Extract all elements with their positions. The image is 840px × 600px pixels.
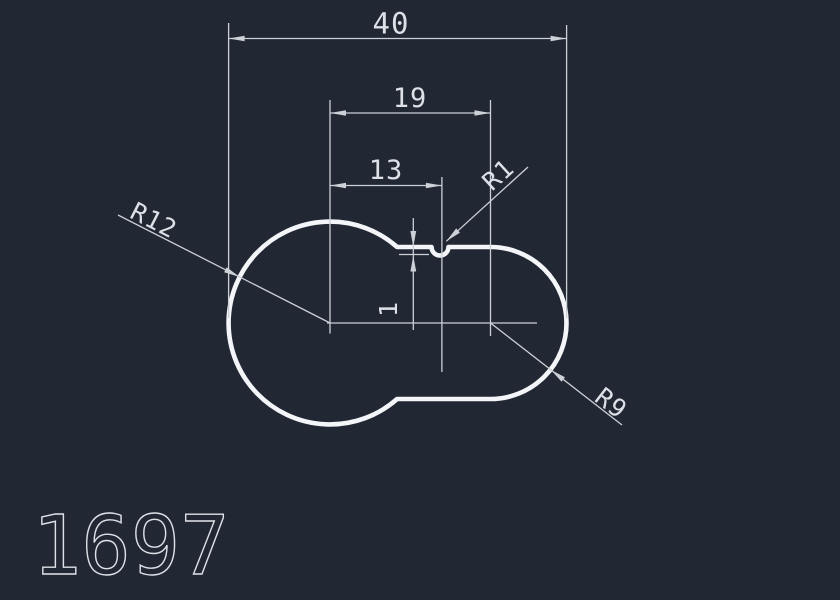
dim-label-40: 40 [373,7,410,41]
dim-label-13: 13 [369,155,404,186]
dim-label-19: 19 [393,83,428,114]
dim-label-1: 1 [374,301,403,317]
cad-canvas: 40 19 13 1 R12 R9 R1 [0,0,840,600]
drawing-number: 1697 [32,499,229,594]
